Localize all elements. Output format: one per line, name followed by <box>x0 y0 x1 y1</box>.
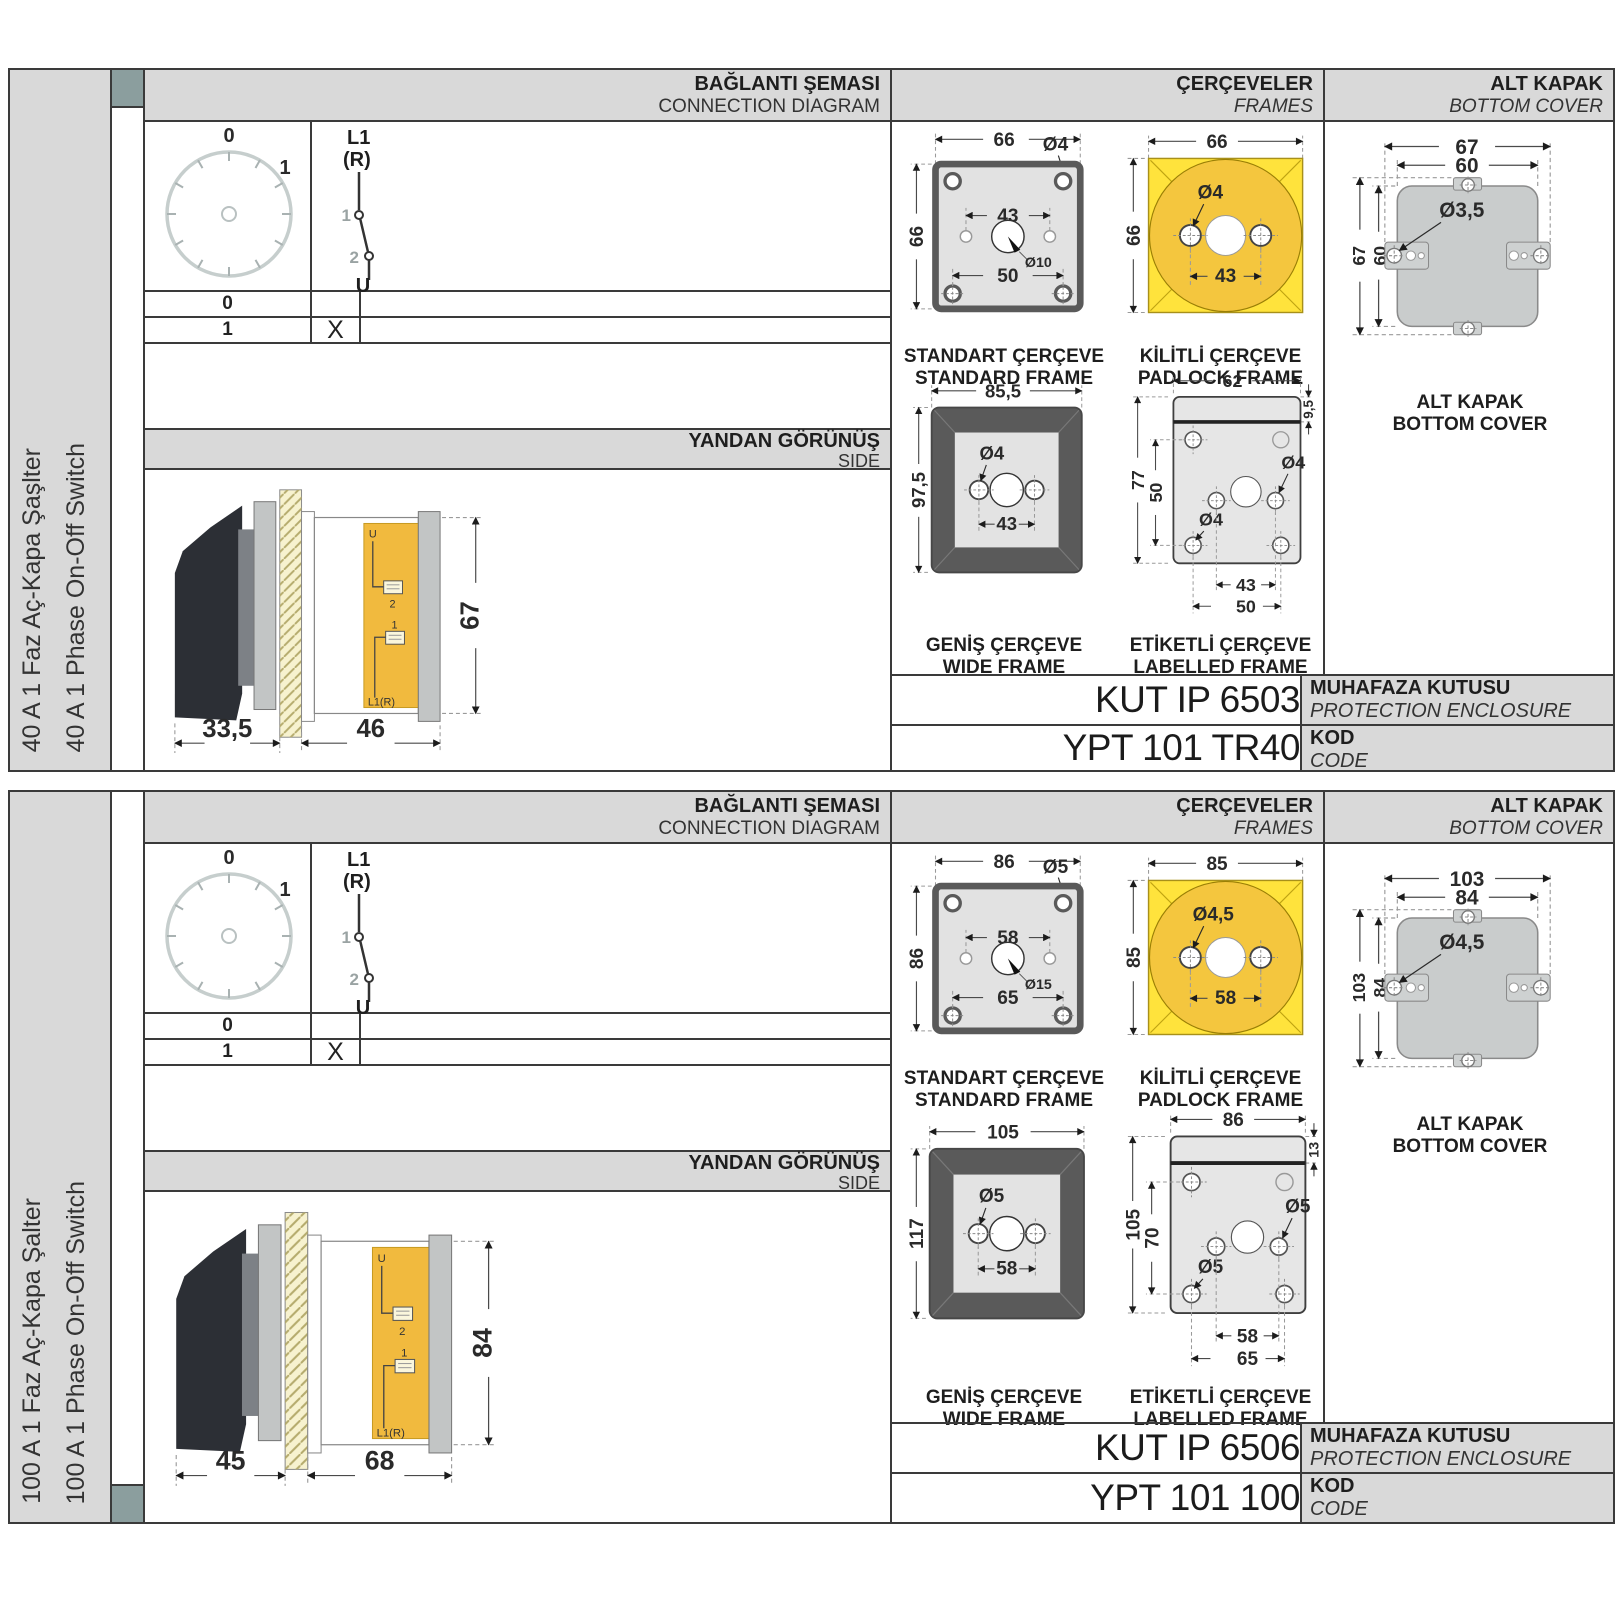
header-bottom-cover: ALT KAPAK BOTTOM COVER <box>1323 70 1613 122</box>
svg-text:58: 58 <box>1237 1326 1258 1347</box>
enclosure-code-row: KUT IP 6503 MUHAFAZA KUTUSU PROTECTION E… <box>890 674 1613 724</box>
svg-text:46: 46 <box>357 715 386 743</box>
svg-text:97,5: 97,5 <box>908 472 929 508</box>
enclosure-code-label: MUHAFAZA KUTUSU PROTECTION ENCLOSURE <box>1300 676 1613 724</box>
product-panel-100a: 100 A 1 Faz Aç-Kapa Şalter 100 A 1 Phase… <box>8 790 1615 1524</box>
svg-text:Ø5: Ø5 <box>1043 857 1069 878</box>
svg-text:L1: L1 <box>347 849 370 871</box>
svg-text:70: 70 <box>1142 1227 1163 1248</box>
svg-text:84: 84 <box>468 1328 498 1358</box>
svg-text:50: 50 <box>1236 597 1256 617</box>
padlock-frame-drawing: 85 Ø4,5 58 85 <box>1120 850 1315 1083</box>
product-name-turkish: 40 A 1 Faz Aç-Kapa Şaşlter <box>18 448 47 752</box>
wide-frame-drawing: 105 Ø5 58 117 <box>903 1110 1103 1382</box>
svg-text:U: U <box>378 1253 386 1265</box>
product-code: YPT 101 TR40 <box>890 726 1300 770</box>
labelled-frame-caption: ETİKETLİ ÇERÇEVELABELLED FRAME <box>1113 635 1328 679</box>
svg-text:67: 67 <box>1349 246 1369 266</box>
product-code: YPT 101 100 <box>890 1474 1300 1522</box>
svg-text:33,5: 33,5 <box>202 715 252 743</box>
svg-text:2: 2 <box>390 599 396 611</box>
svg-text:U: U <box>356 997 370 1014</box>
svg-text:50: 50 <box>997 266 1018 287</box>
svg-text:Ø4: Ø4 <box>1281 452 1305 472</box>
standard-frame-drawing: 66 Ø4 43 Ø10 50 66 <box>903 126 1108 366</box>
standard-frame-drawing: 86 Ø5 58 Ø15 65 86 <box>903 848 1108 1088</box>
svg-text:85,5: 85,5 <box>985 380 1021 401</box>
padlock-frame-caption: KİLİTLİ ÇERÇEVEPADLOCK FRAME <box>1113 1068 1328 1112</box>
product-panel-40a: 40 A 1 Faz Aç-Kapa Şaşlter 40 A 1 Phase … <box>8 68 1615 772</box>
svg-text:Ø4: Ø4 <box>1043 135 1069 156</box>
header-frames: ÇERÇEVELER FRAMES <box>890 70 1323 122</box>
svg-text:50: 50 <box>1146 483 1166 503</box>
svg-text:Ø5: Ø5 <box>1285 1196 1311 1217</box>
svg-text:66: 66 <box>993 130 1014 151</box>
svg-text:68: 68 <box>365 1445 395 1475</box>
svg-text:43: 43 <box>1236 575 1256 595</box>
bottom-cover-caption: ALT KAPAKBOTTOM COVER <box>1330 392 1610 436</box>
svg-text:Ø4: Ø4 <box>1198 182 1224 203</box>
svg-text:L1(R): L1(R) <box>377 1428 405 1440</box>
svg-text:43: 43 <box>1215 266 1236 287</box>
svg-text:45: 45 <box>216 1445 246 1475</box>
svg-text:105: 105 <box>987 1122 1019 1143</box>
svg-text:66: 66 <box>1124 225 1145 246</box>
svg-text:Ø5: Ø5 <box>1198 1257 1224 1278</box>
bottom-cover-caption: ALT KAPAKBOTTOM COVER <box>1330 1114 1610 1158</box>
product-name-english: 100 A 1 Phase On-Off Switch <box>62 1181 91 1504</box>
wide-frame-drawing: 85,5 Ø4 43 97,5 <box>903 376 1103 628</box>
bottom-cover-drawing: 67 60 67 60 Ø3,5 <box>1337 134 1597 342</box>
svg-text:9,5: 9,5 <box>1301 400 1316 419</box>
svg-text:L1: L1 <box>347 127 370 149</box>
svg-text:86: 86 <box>993 852 1014 873</box>
product-code-row: YPT 101 100 KOD CODE <box>890 1472 1613 1522</box>
svg-text:Ø15: Ø15 <box>1025 977 1052 993</box>
switch-dial-drawing: 0 1 <box>157 848 307 1010</box>
header-connection-diagram: BAĞLANTI ŞEMASI CONNECTION DIAGRAM <box>145 792 890 844</box>
position-row-1: 1 X <box>145 1040 890 1066</box>
position-row-0: 0 <box>145 292 890 318</box>
svg-text:Ø4,5: Ø4,5 <box>1439 931 1484 954</box>
svg-text:1: 1 <box>342 206 351 225</box>
product-name-column: 40 A 1 Faz Aç-Kapa Şaşlter 40 A 1 Phase … <box>10 70 112 770</box>
header-side-view: YANDAN GÖRÜNÜŞ SIDE <box>145 428 890 470</box>
svg-text:Ø4: Ø4 <box>980 442 1005 463</box>
svg-text:67: 67 <box>457 601 485 630</box>
position-row-1: 1 X <box>145 318 890 344</box>
svg-text:65: 65 <box>1237 1349 1259 1370</box>
header-frames: ÇERÇEVELER FRAMES <box>890 792 1323 844</box>
product-name-column: 100 A 1 Faz Aç-Kapa Şalter 100 A 1 Phase… <box>10 792 112 1522</box>
svg-text:66: 66 <box>1206 132 1227 153</box>
connection-diagram: 0 1 L1 (R) 1 2 U <box>145 122 890 292</box>
svg-text:2: 2 <box>350 970 359 989</box>
product-code-row: YPT 101 TR40 KOD CODE <box>890 724 1613 770</box>
svg-text:86: 86 <box>1223 1110 1244 1131</box>
svg-text:58: 58 <box>1215 988 1236 1009</box>
svg-text:0: 0 <box>223 126 234 147</box>
product-code-label: KOD CODE <box>1300 1474 1613 1522</box>
svg-text:77: 77 <box>1128 470 1148 490</box>
index-strip <box>112 792 145 1522</box>
svg-text:Ø4: Ø4 <box>1199 510 1223 530</box>
header-connection-diagram: BAĞLANTI ŞEMASI CONNECTION DIAGRAM <box>145 70 890 122</box>
product-name-turkish: 100 A 1 Faz Aç-Kapa Şalter <box>18 1198 47 1504</box>
svg-text:Ø10: Ø10 <box>1025 255 1052 271</box>
svg-text:85: 85 <box>1124 946 1145 968</box>
index-tab <box>112 70 143 108</box>
position-row-0: 0 <box>145 1014 890 1040</box>
svg-text:0: 0 <box>223 848 234 869</box>
svg-text:2: 2 <box>350 248 359 267</box>
svg-text:L1(R): L1(R) <box>368 697 395 709</box>
svg-text:62: 62 <box>1223 371 1243 391</box>
switch-contact-symbol: L1 (R) 1 2 U <box>317 846 412 1014</box>
svg-text:58: 58 <box>996 1259 1017 1280</box>
connection-diagram: 0 1 L1 (R) 1 2 U <box>145 844 890 1014</box>
side-view-drawing: U 2 1 L1(R) 84 45 68 <box>153 1194 668 1492</box>
svg-text:84: 84 <box>1455 886 1479 909</box>
svg-text:1: 1 <box>392 619 398 631</box>
svg-text:1: 1 <box>279 157 290 179</box>
padlock-frame-drawing: 66 Ø4 43 66 <box>1120 128 1315 361</box>
svg-text:86: 86 <box>907 948 928 969</box>
svg-text:1: 1 <box>401 1347 407 1359</box>
enclosure-code: KUT IP 6506 <box>890 1424 1300 1472</box>
svg-text:1: 1 <box>279 879 290 901</box>
enclosure-code-label: MUHAFAZA KUTUSU PROTECTION ENCLOSURE <box>1300 1424 1613 1472</box>
header-side-view: YANDAN GÖRÜNÜŞ SIDE <box>145 1150 890 1192</box>
svg-text:43: 43 <box>996 513 1017 534</box>
svg-text:105: 105 <box>1123 1208 1144 1240</box>
svg-text:(R): (R) <box>343 871 371 893</box>
labelled-frame-drawing: 86 13 Ø5 Ø5 105 70 58 <box>1117 1108 1322 1388</box>
index-tab <box>112 1484 143 1522</box>
bottom-cover-drawing: 103 84 103 84 Ø4,5 <box>1337 856 1597 1084</box>
svg-text:Ø3,5: Ø3,5 <box>1439 199 1484 222</box>
switch-contact-symbol: L1 (R) 1 2 U <box>317 124 412 292</box>
svg-text:2: 2 <box>399 1326 405 1338</box>
svg-text:117: 117 <box>907 1218 928 1249</box>
svg-text:U: U <box>356 275 370 292</box>
svg-text:85: 85 <box>1206 854 1228 875</box>
header-bottom-cover: ALT KAPAK BOTTOM COVER <box>1323 792 1613 844</box>
switch-dial-drawing: 0 1 <box>157 126 307 288</box>
catalog-page: 40 A 1 Faz Aç-Kapa Şaşlter 40 A 1 Phase … <box>0 0 1623 1620</box>
svg-text:66: 66 <box>907 226 928 247</box>
svg-text:Ø5: Ø5 <box>979 1186 1005 1207</box>
svg-text:60: 60 <box>1455 154 1478 177</box>
svg-text:1: 1 <box>342 928 351 947</box>
wide-frame-caption: GENİŞ ÇERÇEVEWIDE FRAME <box>893 635 1115 679</box>
side-view-drawing: U 2 1 L1(R) 67 33,5 46 <box>153 472 648 759</box>
product-code-label: KOD CODE <box>1300 726 1613 770</box>
svg-text:U: U <box>369 528 377 540</box>
index-strip <box>112 70 145 770</box>
product-name-english: 40 A 1 Phase On-Off Switch <box>62 443 91 752</box>
standard-frame-caption: STANDART ÇERÇEVESTANDARD FRAME <box>893 1068 1115 1112</box>
svg-text:(R): (R) <box>343 149 371 171</box>
svg-text:103: 103 <box>1349 973 1369 1003</box>
enclosure-code-row: KUT IP 6506 MUHAFAZA KUTUSU PROTECTION E… <box>890 1422 1613 1472</box>
svg-text:Ø4,5: Ø4,5 <box>1193 904 1235 925</box>
svg-text:65: 65 <box>997 988 1019 1009</box>
labelled-frame-drawing: 62 9,5 Ø4 Ø4 77 50 43 <box>1117 370 1322 634</box>
enclosure-code: KUT IP 6503 <box>890 676 1300 724</box>
svg-text:13: 13 <box>1307 1142 1322 1158</box>
